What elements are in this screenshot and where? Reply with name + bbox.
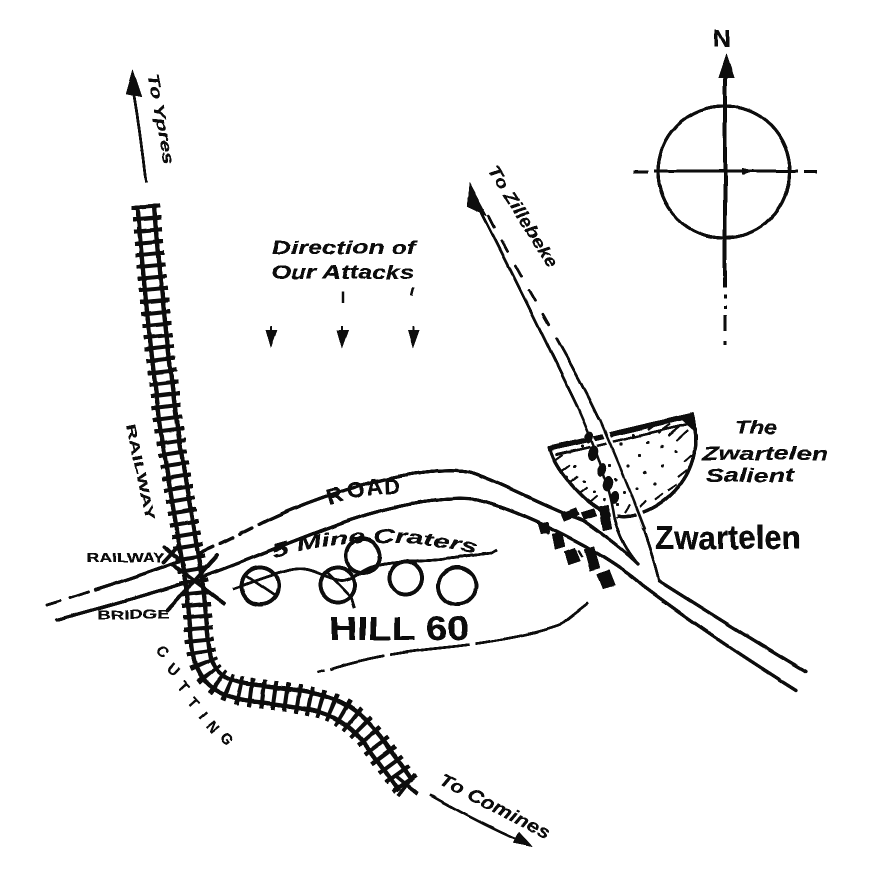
svg-text:Our Attacks: Our Attacks — [271, 263, 414, 284]
svg-text:Direction of: Direction of — [272, 238, 418, 259]
svg-text:D: D — [384, 474, 400, 499]
svg-text:BRIDGE: BRIDGE — [98, 607, 169, 622]
svg-text:The: The — [735, 418, 778, 439]
svg-text:RAILWAY: RAILWAY — [87, 550, 165, 565]
svg-text:HILL 60: HILL 60 — [329, 610, 469, 647]
svg-text:Salient: Salient — [706, 466, 795, 487]
svg-text:Zwartelen: Zwartelen — [655, 519, 801, 556]
svg-text:N: N — [713, 25, 731, 53]
svg-text:A: A — [365, 473, 384, 500]
svg-text:Zwartelen: Zwartelen — [701, 444, 828, 465]
